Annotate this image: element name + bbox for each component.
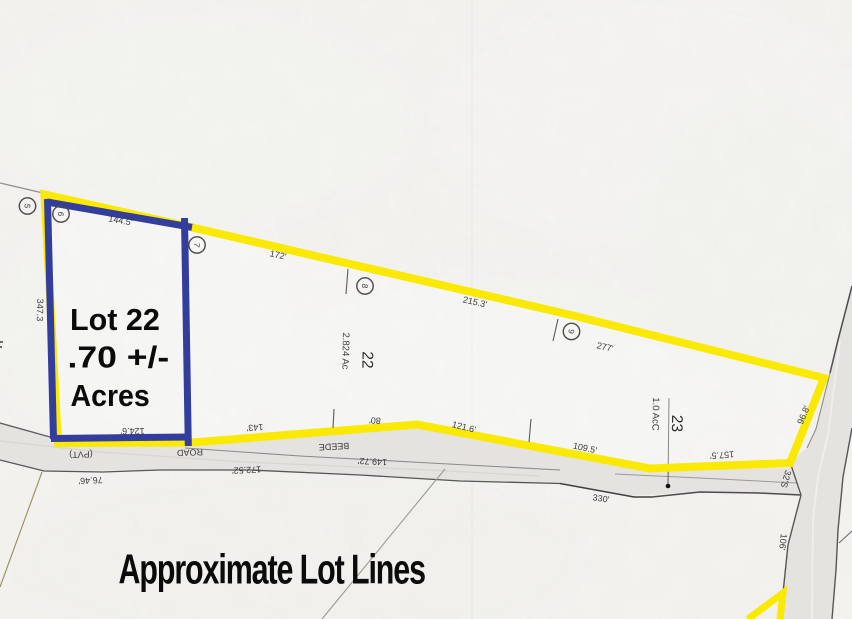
svg-text:ROAD: ROAD [176, 447, 203, 458]
svg-text:(PVT): (PVT) [69, 449, 93, 460]
svg-text:172.52': 172.52' [231, 464, 261, 476]
svg-text:1.0 AcC: 1.0 AcC [649, 397, 661, 431]
svg-text:2.824 Ac: 2.824 Ac [339, 332, 351, 369]
svg-text:BEEDE: BEEDE [319, 441, 350, 453]
svg-text:347.3: 347.3 [35, 299, 45, 322]
svg-text:76.46': 76.46' [78, 475, 103, 486]
svg-text:Lot 22: Lot 22 [70, 303, 160, 337]
svg-text:22: 22 [358, 351, 375, 369]
svg-text:143': 143' [246, 422, 264, 433]
svg-text:157.5': 157.5' [709, 449, 734, 461]
svg-text:.70 +/-: .70 +/- [68, 341, 170, 375]
svg-text:80': 80' [369, 415, 382, 426]
svg-text:106': 106' [777, 533, 789, 551]
svg-text:23: 23 [668, 415, 685, 433]
svg-text:149.72': 149.72' [357, 456, 387, 468]
svg-text:Approximate Lot Lines: Approximate Lot Lines [119, 546, 425, 593]
svg-text:Acres: Acres [71, 379, 150, 413]
svg-text:124.6': 124.6' [120, 426, 145, 436]
